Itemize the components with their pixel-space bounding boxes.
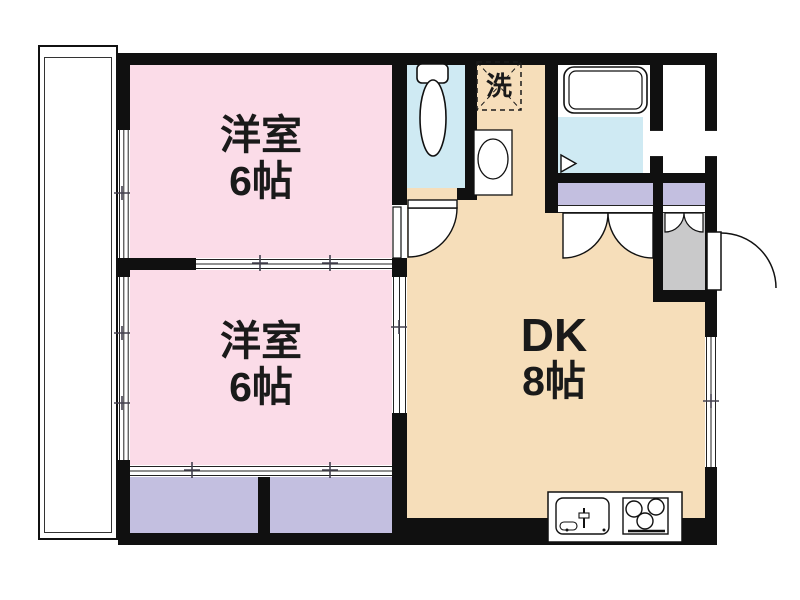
room2-name: 洋室 bbox=[130, 318, 392, 364]
window-lines-room2 bbox=[120, 277, 129, 460]
floorplan: 洋室 6帖 洋室 6帖 DK 8帖 洗 bbox=[0, 0, 800, 600]
room1-door-leaf bbox=[393, 207, 401, 258]
laundry-label: 洗 bbox=[477, 62, 521, 110]
fixtures-layer bbox=[0, 0, 800, 600]
toilet-door-arc bbox=[408, 200, 457, 257]
sliding-door-lines-rooms bbox=[196, 260, 392, 269]
washbasin-icon bbox=[474, 130, 512, 195]
entrance-door-arc bbox=[707, 232, 776, 290]
hall-closet-doors bbox=[563, 213, 653, 258]
dk-size: 8帖 bbox=[404, 358, 704, 404]
dk-name: DK bbox=[404, 312, 704, 358]
room2-size: 6帖 bbox=[130, 364, 392, 410]
room1-name: 洋室 bbox=[130, 112, 392, 158]
toilet-icon bbox=[417, 64, 448, 156]
dk-label: DK 8帖 bbox=[404, 312, 704, 404]
room1-label: 洋室 6帖 bbox=[130, 112, 392, 204]
closet-track-lines bbox=[130, 467, 392, 476]
room1-size: 6帖 bbox=[130, 158, 392, 204]
window-lines-room1 bbox=[120, 130, 129, 258]
kitchen-sink-icon bbox=[556, 498, 609, 534]
room2-label: 洋室 6帖 bbox=[130, 318, 392, 410]
bathtub-icon bbox=[564, 67, 647, 113]
bath-door-marker bbox=[561, 155, 576, 172]
entry-closet-doors bbox=[665, 213, 703, 232]
stove-icon bbox=[623, 498, 668, 534]
